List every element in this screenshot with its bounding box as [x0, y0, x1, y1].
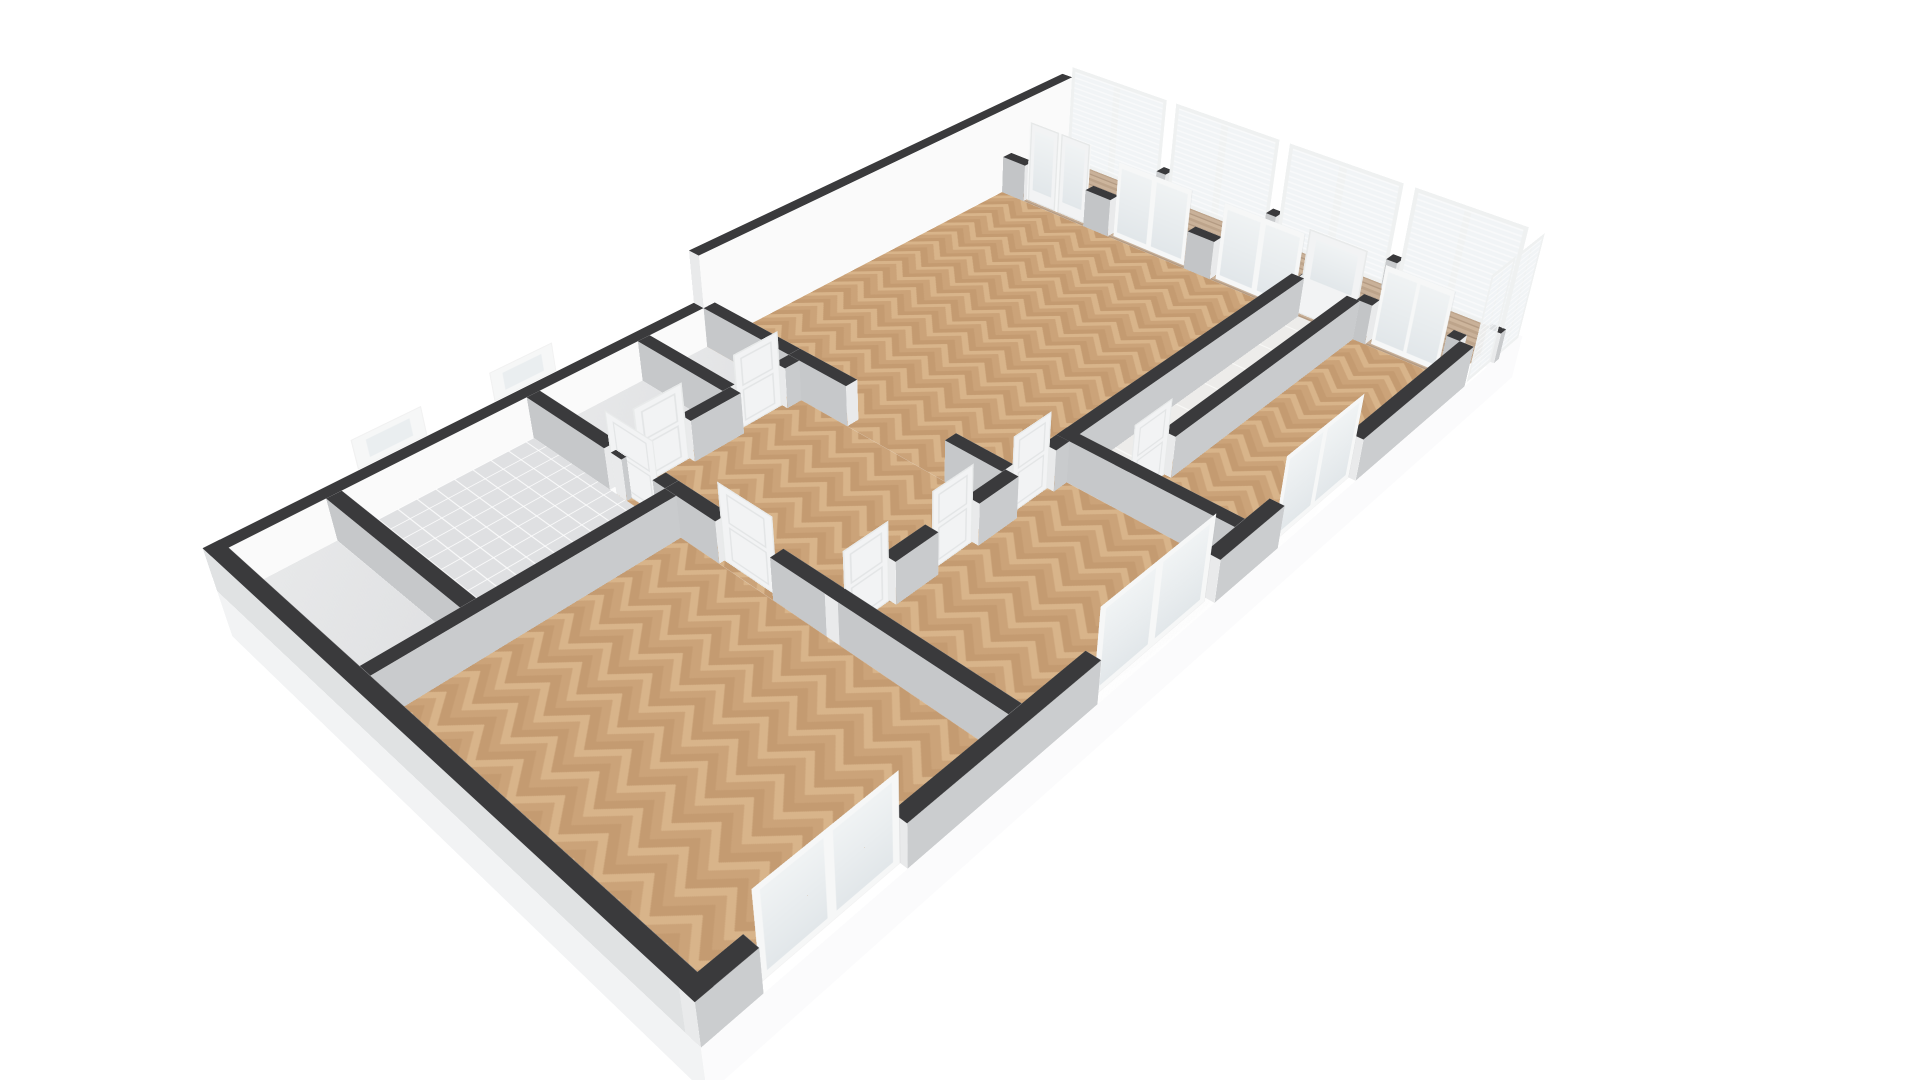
glass-panel-bar	[1211, 123, 1228, 215]
door-glass	[1310, 240, 1358, 297]
floorplan-stage	[0, 0, 1920, 1080]
wall-cap	[846, 380, 858, 427]
building-plan	[217, 154, 1522, 1048]
wall-face-south-wc-south	[785, 361, 801, 409]
floorplan-3d-view	[0, 0, 1920, 1080]
door-glass	[1033, 131, 1055, 197]
door-leaf	[1028, 122, 1059, 211]
door-glass	[1062, 143, 1085, 210]
